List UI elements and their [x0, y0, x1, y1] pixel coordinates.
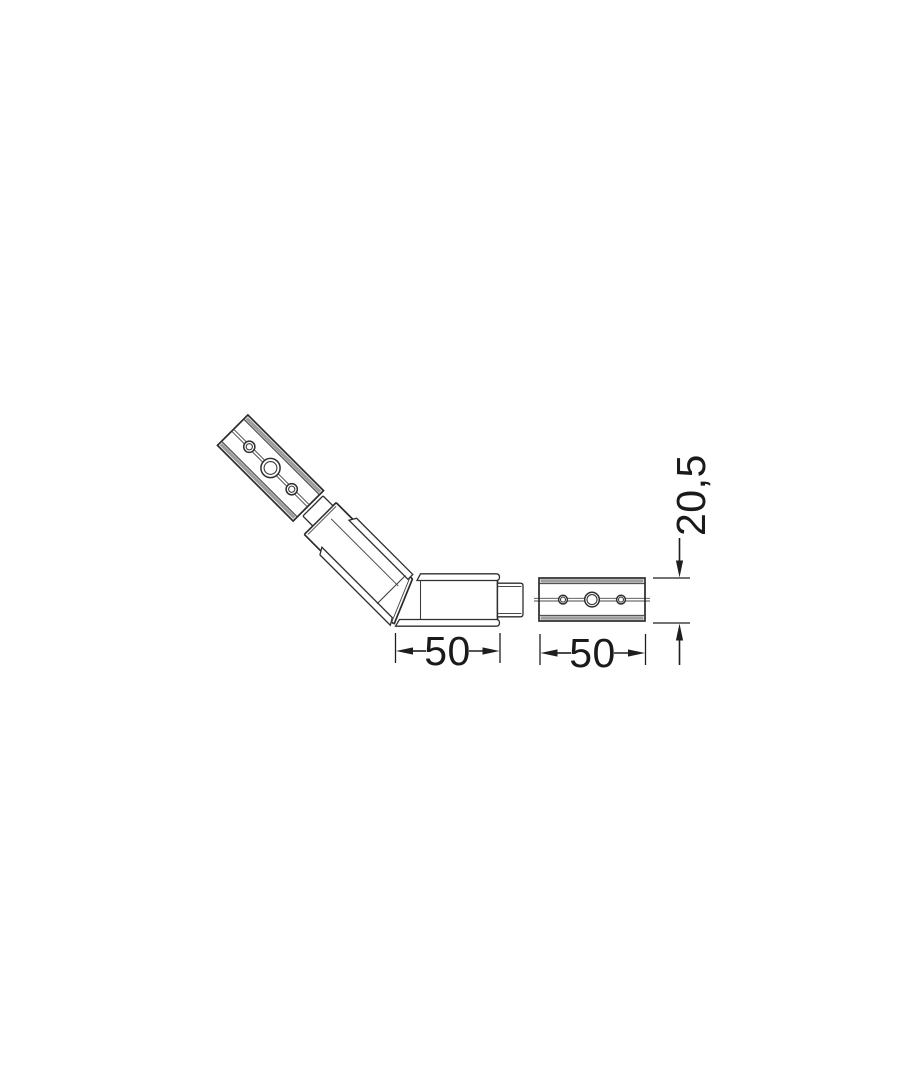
side-rail-lower: [317, 547, 395, 625]
arrowhead-down: [676, 561, 683, 578]
dimension-right-50: 50: [540, 630, 646, 676]
side-rail-upper: [349, 515, 413, 579]
profile-segment-right: [534, 578, 650, 621]
corner-connector-horizontal-arm: [391, 574, 523, 626]
miter-line: [394, 579, 413, 625]
mounting-hole-small-inner: [561, 597, 566, 602]
dim-label-left-50: 50: [424, 628, 471, 674]
arrowhead-right: [628, 649, 645, 656]
insert-tongue: [498, 583, 524, 617]
side-rail-top: [417, 574, 500, 581]
profile-segment-angled: [217, 415, 323, 521]
dim-label-right-50: 50: [569, 630, 616, 676]
mounting-hole-small-inner: [619, 597, 624, 602]
arrowhead-up: [676, 624, 683, 641]
dim-label-height-205: 20,5: [668, 454, 714, 536]
corner-connector-drawing: 50 50 20,5: [0, 0, 910, 1080]
corner-connector-angled-arm: [292, 490, 428, 626]
arrowhead-right: [483, 647, 500, 654]
arrowhead-left: [541, 649, 558, 656]
mounting-hole-large-inner: [587, 595, 597, 605]
technical-drawing-page: 50 50 20,5: [0, 0, 910, 1080]
arrowhead-left: [396, 647, 413, 654]
dimension-left-50: 50: [396, 628, 501, 674]
miter-line-inner: [391, 578, 409, 623]
dimension-height-205: 20,5: [653, 454, 714, 665]
side-rail-bottom: [396, 620, 500, 627]
